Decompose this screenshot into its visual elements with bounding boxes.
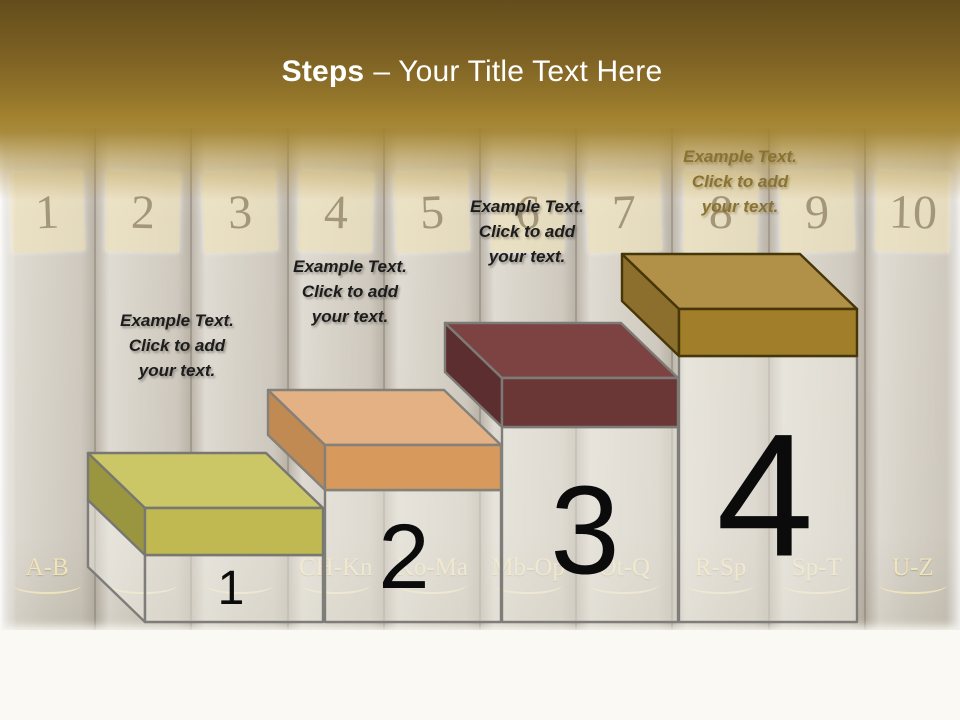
- step-1-number: 1: [218, 565, 245, 613]
- slide-canvas: 1 A-B 2 3 4 CH-Kn 5 Ko-Ma 6 Mb-Op 7 Ot-Q…: [0, 0, 960, 720]
- step-1-front-face: [145, 508, 323, 555]
- step-3-placeholder-text[interactable]: Example Text. Click to add your text.: [432, 194, 622, 269]
- placeholder-line: Example Text.: [82, 308, 272, 333]
- step-3-front-face: [502, 378, 678, 427]
- placeholder-line: your text.: [645, 194, 835, 219]
- placeholder-line: your text.: [432, 244, 622, 269]
- placeholder-line: your text.: [82, 358, 272, 383]
- step-2-placeholder-text[interactable]: Example Text. Click to add your text.: [255, 254, 445, 329]
- placeholder-line: Example Text.: [645, 144, 835, 169]
- step-4-front-face: [679, 309, 857, 356]
- placeholder-line: Example Text.: [255, 254, 445, 279]
- step-2-front-face: [325, 445, 501, 490]
- placeholder-line: Click to add: [255, 279, 445, 304]
- placeholder-line: Click to add: [432, 219, 622, 244]
- step-2-number: 2: [378, 511, 429, 603]
- placeholder-line: your text.: [255, 304, 445, 329]
- placeholder-line: Example Text.: [432, 194, 622, 219]
- step-4-number: 4: [716, 409, 813, 584]
- step-1-shape: [88, 453, 323, 622]
- step-1-placeholder-text[interactable]: Example Text. Click to add your text.: [82, 308, 272, 383]
- step-3-number: 3: [550, 469, 620, 594]
- step-4-placeholder-text[interactable]: Example Text. Click to add your text.: [645, 144, 835, 219]
- placeholder-line: Click to add: [82, 333, 272, 358]
- placeholder-line: Click to add: [645, 169, 835, 194]
